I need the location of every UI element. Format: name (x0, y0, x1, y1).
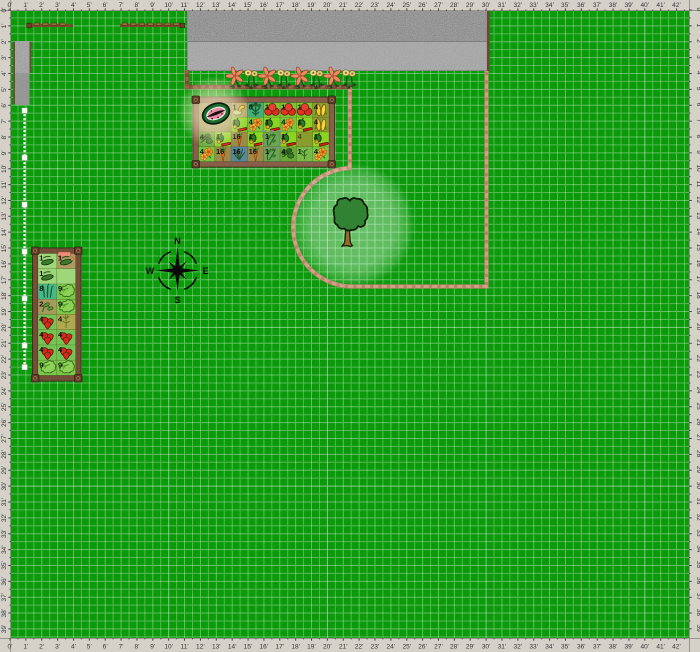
svg-text:0’: 0’ (695, 7, 700, 13)
svg-text:37’: 37’ (593, 644, 602, 651)
svg-text:5’: 5’ (1, 86, 8, 92)
svg-text:41’: 41’ (656, 644, 665, 651)
svg-text:16’: 16’ (695, 260, 700, 269)
svg-text:20’: 20’ (323, 644, 332, 651)
svg-text:1: 1 (58, 254, 62, 263)
svg-text:16’: 16’ (260, 644, 269, 651)
svg-text:35’: 35’ (695, 561, 700, 570)
svg-text:27’: 27’ (434, 644, 443, 651)
svg-text:W: W (146, 266, 155, 276)
svg-text:22’: 22’ (355, 2, 364, 9)
svg-text:24’: 24’ (1, 386, 8, 395)
svg-text:5’: 5’ (87, 644, 93, 651)
svg-text:9: 9 (58, 299, 62, 308)
svg-text:2’: 2’ (1, 39, 8, 45)
svg-text:6’: 6’ (1, 102, 8, 108)
svg-text:1: 1 (249, 132, 253, 141)
svg-text:24’: 24’ (387, 2, 396, 9)
svg-text:18’: 18’ (291, 644, 300, 651)
svg-text:39’: 39’ (625, 644, 634, 651)
svg-text:15’: 15’ (244, 2, 253, 9)
svg-text:31’: 31’ (498, 2, 507, 9)
svg-text:35’: 35’ (561, 2, 570, 9)
svg-text:4’: 4’ (71, 2, 77, 9)
svg-text:11’: 11’ (695, 180, 700, 189)
svg-text:38’: 38’ (609, 644, 618, 651)
svg-text:36’: 36’ (577, 644, 586, 651)
svg-text:20’: 20’ (695, 323, 700, 332)
svg-text:26’: 26’ (695, 418, 700, 427)
svg-text:14’: 14’ (228, 2, 237, 9)
svg-text:26’: 26’ (418, 644, 427, 651)
svg-text:1: 1 (39, 254, 43, 263)
svg-text:12’: 12’ (1, 196, 8, 205)
svg-text:25’: 25’ (402, 644, 411, 651)
svg-text:2: 2 (39, 299, 43, 308)
svg-text:1: 1 (39, 269, 43, 278)
svg-text:29’: 29’ (695, 466, 700, 475)
svg-text:8’: 8’ (1, 134, 8, 140)
svg-text:4’: 4’ (695, 71, 700, 77)
svg-text:1: 1 (298, 117, 302, 126)
svg-text:33’: 33’ (529, 2, 538, 9)
svg-text:1: 1 (314, 132, 318, 141)
svg-text:31’: 31’ (695, 498, 700, 507)
svg-text:27’: 27’ (434, 2, 443, 9)
svg-text:12’: 12’ (196, 644, 205, 651)
svg-text:23’: 23’ (1, 370, 8, 379)
svg-text:10’: 10’ (1, 164, 8, 173)
svg-text:41’: 41’ (656, 2, 665, 9)
svg-text:38’: 38’ (1, 608, 8, 617)
svg-text:12’: 12’ (196, 2, 205, 9)
svg-text:18’: 18’ (1, 291, 8, 300)
svg-text:1’: 1’ (695, 23, 700, 29)
svg-text:32’: 32’ (1, 513, 8, 522)
svg-text:31’: 31’ (498, 644, 507, 651)
svg-text:28’: 28’ (695, 450, 700, 459)
svg-text:5’: 5’ (695, 87, 700, 93)
svg-text:7’: 7’ (119, 644, 125, 651)
svg-text:42’: 42’ (672, 644, 681, 651)
svg-text:21’: 21’ (339, 2, 348, 9)
svg-text:25’: 25’ (1, 402, 8, 411)
svg-text:1’: 1’ (1, 23, 8, 29)
svg-text:23’: 23’ (371, 2, 380, 9)
svg-text:1: 1 (265, 103, 269, 112)
svg-text:21’: 21’ (695, 339, 700, 348)
svg-text:13’: 13’ (695, 212, 700, 221)
svg-text:0’: 0’ (7, 2, 13, 9)
svg-text:33’: 33’ (695, 529, 700, 538)
svg-text:N: N (174, 236, 181, 246)
svg-text:24’: 24’ (387, 644, 396, 651)
svg-text:25’: 25’ (402, 2, 411, 9)
svg-text:35’: 35’ (561, 644, 570, 651)
svg-text:40’: 40’ (640, 644, 649, 651)
svg-text:37’: 37’ (1, 592, 8, 601)
svg-text:4’: 4’ (1, 70, 8, 76)
svg-text:30’: 30’ (482, 2, 491, 9)
svg-text:3’: 3’ (55, 644, 61, 651)
svg-text:17’: 17’ (695, 275, 700, 284)
svg-text:33’: 33’ (529, 644, 538, 651)
svg-text:22’: 22’ (1, 354, 8, 363)
svg-text:20’: 20’ (323, 2, 332, 9)
svg-text:8’: 8’ (695, 134, 700, 140)
svg-text:27’: 27’ (1, 434, 8, 443)
svg-text:11’: 11’ (180, 644, 189, 651)
svg-text:21’: 21’ (1, 338, 8, 347)
svg-text:8: 8 (39, 284, 43, 293)
svg-text:42’: 42’ (672, 2, 681, 9)
svg-text:34’: 34’ (1, 545, 8, 554)
svg-text:12’: 12’ (695, 196, 700, 205)
svg-text:9: 9 (39, 360, 43, 369)
svg-text:21’: 21’ (339, 644, 348, 651)
svg-text:E: E (202, 266, 208, 276)
svg-text:1: 1 (265, 117, 269, 126)
svg-text:30’: 30’ (482, 644, 491, 651)
svg-text:15’: 15’ (1, 243, 8, 252)
svg-text:35’: 35’ (1, 561, 8, 570)
svg-text:23’: 23’ (695, 371, 700, 380)
svg-text:29’: 29’ (1, 465, 8, 474)
svg-text:39’: 39’ (695, 625, 700, 634)
svg-text:19’: 19’ (307, 644, 316, 651)
svg-text:22’: 22’ (355, 644, 364, 651)
svg-text:6’: 6’ (695, 103, 700, 109)
svg-text:30’: 30’ (1, 481, 8, 490)
svg-text:10’: 10’ (164, 644, 173, 651)
svg-text:10’: 10’ (695, 164, 700, 173)
svg-text:18’: 18’ (695, 291, 700, 300)
svg-text:28’: 28’ (450, 644, 459, 651)
svg-text:23’: 23’ (371, 644, 380, 651)
svg-text:4’: 4’ (71, 644, 77, 651)
svg-text:2’: 2’ (39, 2, 45, 9)
svg-text:9’: 9’ (150, 644, 156, 651)
svg-text:1’: 1’ (23, 2, 29, 9)
svg-text:36’: 36’ (577, 2, 586, 9)
svg-text:10’: 10’ (164, 2, 173, 9)
svg-text:24’: 24’ (695, 387, 700, 396)
svg-text:3’: 3’ (695, 55, 700, 61)
svg-text:16: 16 (232, 147, 240, 156)
svg-text:5’: 5’ (87, 2, 93, 9)
svg-text:11’: 11’ (180, 2, 189, 9)
svg-text:39’: 39’ (625, 2, 634, 9)
svg-text:26’: 26’ (1, 418, 8, 427)
svg-text:25’: 25’ (695, 402, 700, 411)
svg-text:1’: 1’ (23, 644, 29, 651)
svg-text:2’: 2’ (695, 39, 700, 45)
svg-text:19’: 19’ (307, 2, 316, 9)
svg-text:34’: 34’ (545, 2, 554, 9)
svg-text:39’: 39’ (1, 624, 8, 633)
svg-text:7’: 7’ (695, 119, 700, 125)
svg-text:14’: 14’ (695, 228, 700, 237)
svg-text:16: 16 (249, 147, 257, 156)
svg-text:28’: 28’ (1, 450, 8, 459)
svg-text:1: 1 (265, 132, 269, 141)
svg-text:14’: 14’ (228, 644, 237, 651)
svg-text:7’: 7’ (1, 118, 8, 124)
svg-text:30’: 30’ (695, 482, 700, 491)
svg-text:9: 9 (58, 284, 62, 293)
svg-text:1: 1 (281, 103, 285, 112)
svg-text:8’: 8’ (134, 2, 140, 9)
svg-text:15’: 15’ (244, 644, 253, 651)
svg-text:32’: 32’ (513, 644, 522, 651)
svg-text:34’: 34’ (695, 545, 700, 554)
svg-text:19’: 19’ (1, 307, 8, 316)
svg-text:0’: 0’ (1, 7, 8, 13)
svg-text:15’: 15’ (695, 244, 700, 253)
svg-text:13’: 13’ (212, 644, 221, 651)
svg-text:1: 1 (281, 132, 285, 141)
svg-text:9’: 9’ (1, 150, 8, 156)
svg-text:27’: 27’ (695, 434, 700, 443)
svg-text:26’: 26’ (418, 2, 427, 9)
svg-text:17’: 17’ (275, 644, 284, 651)
svg-text:9’: 9’ (695, 150, 700, 156)
svg-text:13’: 13’ (1, 211, 8, 220)
svg-text:1: 1 (298, 103, 302, 112)
svg-text:34’: 34’ (545, 644, 554, 651)
svg-text:20’: 20’ (1, 323, 8, 332)
svg-text:0’: 0’ (7, 644, 13, 651)
svg-text:14’: 14’ (1, 227, 8, 236)
svg-text:S: S (174, 295, 180, 305)
svg-text:32’: 32’ (513, 2, 522, 9)
svg-text:36’: 36’ (1, 576, 8, 585)
svg-text:22’: 22’ (695, 355, 700, 364)
svg-text:29’: 29’ (466, 2, 475, 9)
svg-text:16: 16 (216, 147, 224, 156)
svg-text:2’: 2’ (39, 644, 45, 651)
svg-text:1: 1 (298, 147, 302, 156)
svg-text:18’: 18’ (291, 2, 300, 9)
svg-text:6’: 6’ (103, 2, 109, 9)
svg-text:9’: 9’ (150, 2, 156, 9)
svg-text:37’: 37’ (593, 2, 602, 9)
svg-text:7’: 7’ (119, 2, 125, 9)
svg-text:3’: 3’ (1, 55, 8, 61)
svg-text:29’: 29’ (466, 644, 475, 651)
svg-text:11’: 11’ (1, 180, 8, 189)
svg-text:3’: 3’ (55, 2, 61, 9)
svg-text:6’: 6’ (103, 644, 109, 651)
svg-text:28’: 28’ (450, 2, 459, 9)
svg-text:17’: 17’ (1, 275, 8, 284)
svg-text:8’: 8’ (134, 644, 140, 651)
svg-text:36’: 36’ (695, 577, 700, 586)
svg-text:38’: 38’ (695, 609, 700, 618)
svg-text:9: 9 (58, 360, 62, 369)
svg-text:40’: 40’ (640, 2, 649, 9)
svg-text:19’: 19’ (695, 307, 700, 316)
svg-text:13’: 13’ (212, 2, 221, 9)
svg-text:37’: 37’ (695, 593, 700, 602)
svg-text:31’: 31’ (1, 497, 8, 506)
svg-text:33’: 33’ (1, 529, 8, 538)
svg-text:16’: 16’ (260, 2, 269, 9)
svg-text:16’: 16’ (1, 259, 8, 268)
svg-text:38’: 38’ (609, 2, 618, 9)
svg-text:32’: 32’ (695, 513, 700, 522)
svg-text:17’: 17’ (275, 2, 284, 9)
